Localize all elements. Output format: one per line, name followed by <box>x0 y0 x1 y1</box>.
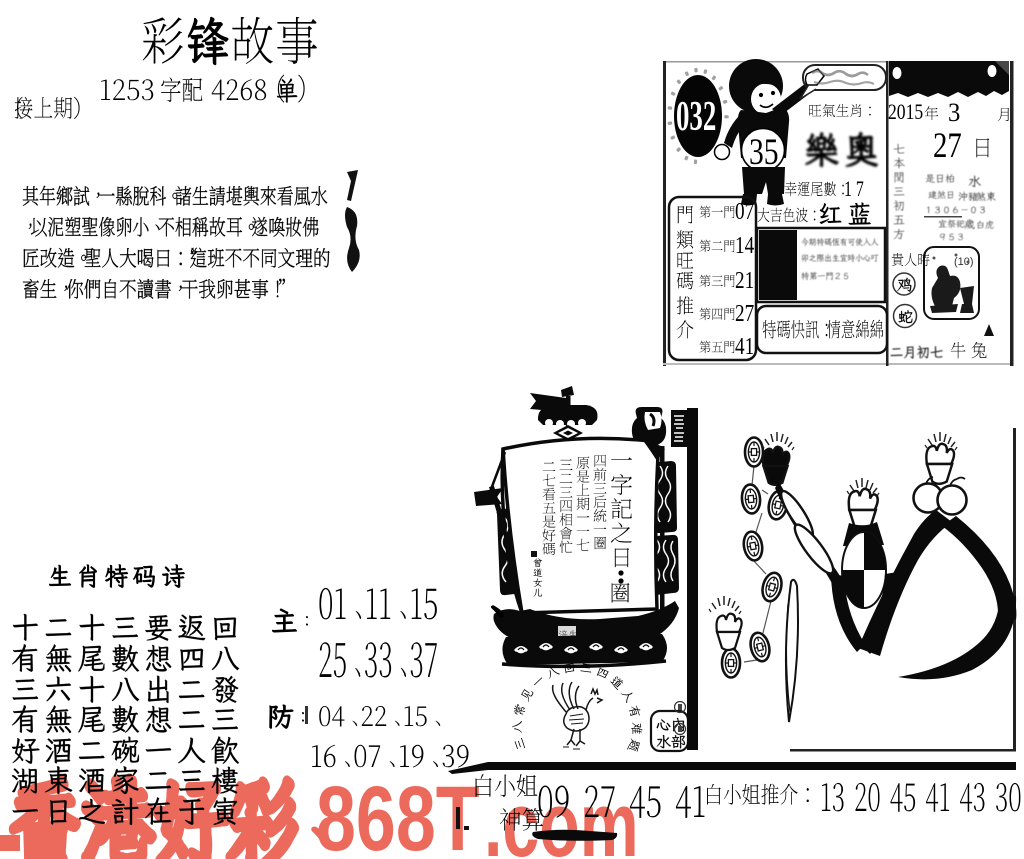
svg-text:07: 07 <box>735 198 754 225</box>
svg-text:1 7: 1 7 <box>844 178 864 202</box>
svg-text:21: 21 <box>735 267 754 294</box>
svg-text:2015: 2015 <box>888 100 923 124</box>
svg-text:27: 27 <box>933 126 962 166</box>
svg-text:.com: .com <box>484 772 639 859</box>
svg-text:41: 41 <box>735 333 754 360</box>
svg-text:14: 14 <box>735 232 754 259</box>
svg-text:032: 032 <box>676 93 716 139</box>
svg-text:(10): (10) <box>954 256 974 268</box>
svg-text:3: 3 <box>948 98 960 127</box>
svg-text:35: 35 <box>749 132 779 173</box>
svg-text:868T: 868T <box>316 767 480 859</box>
svg-text:27: 27 <box>735 300 754 327</box>
